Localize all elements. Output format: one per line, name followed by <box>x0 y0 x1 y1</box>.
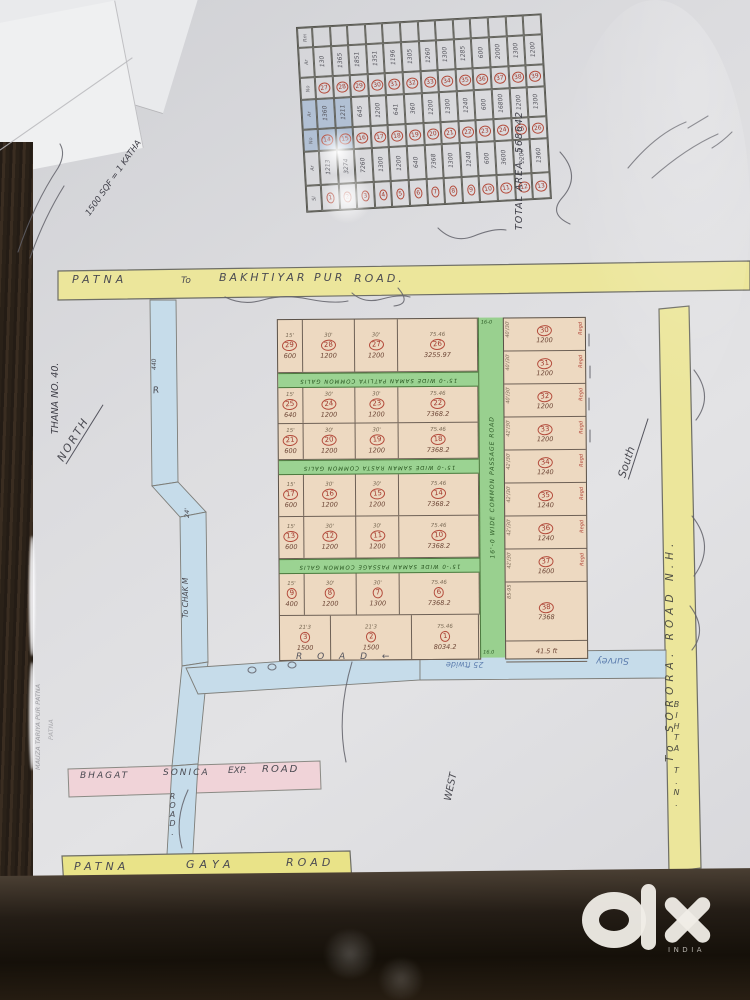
table-cell-value: No <box>308 137 314 144</box>
table-cell-value: 1 <box>326 191 335 203</box>
plot-dimension: 75.46 <box>430 427 446 433</box>
plot-area: 1200 <box>321 447 338 455</box>
plot-area: 600 <box>284 447 296 455</box>
table-cell <box>488 16 507 37</box>
table-cell <box>347 24 366 45</box>
left-road-label-mid: To CHAK M <box>181 522 190 618</box>
plot-area: 1200 <box>537 435 554 443</box>
table-cell-value: 28 <box>335 80 348 93</box>
table-cell-value: 7368 <box>430 154 438 170</box>
plot-dimension: 15' <box>286 392 295 398</box>
plot-area: 1200 <box>368 446 385 454</box>
table-cell: 19 <box>406 123 425 146</box>
plot-dimension: 21'3 <box>299 624 311 630</box>
table-cell: 1300 <box>442 143 461 178</box>
table-cell-value: 3600 <box>500 150 508 166</box>
registration-mark: Regd <box>579 454 585 467</box>
plot-number: 26 <box>429 338 445 350</box>
table-cell-value: 33 <box>423 75 436 88</box>
table-cell-value: 1240 <box>462 98 470 114</box>
table-cell: 1300 <box>436 39 455 70</box>
table-cell: 34 <box>438 69 457 92</box>
table-cell: 23 <box>476 119 495 142</box>
table-cell-value: 22 <box>461 125 474 138</box>
table-cell: 5 <box>391 180 410 207</box>
plot-number: 9 <box>286 588 297 600</box>
table-cell <box>470 17 489 38</box>
table-cell: 37 <box>490 66 509 89</box>
plot-row: 15'940030'8120030'7130075.4667368.2 <box>280 573 480 616</box>
plot-number: 1 <box>439 630 450 642</box>
plot-area: 400 <box>285 600 297 608</box>
registration-mark: Regd <box>579 421 585 434</box>
table-cell <box>365 23 384 44</box>
table-cell-value: 7 <box>431 186 440 198</box>
registration-mark: Regd <box>578 355 584 368</box>
table-cell: 1285 <box>454 38 473 69</box>
plot-dimension: 30' <box>373 523 382 529</box>
plot-dimension: 15' <box>287 524 296 530</box>
plot-number: 37 <box>538 555 554 567</box>
plot-number: 29 <box>282 339 298 351</box>
table-cell <box>523 14 542 35</box>
table-cell: 26 <box>528 116 547 139</box>
plot-area: 7368 <box>538 613 555 621</box>
table-cell-value: 9 <box>466 184 475 196</box>
plot-cell: 30'121200 <box>304 517 357 558</box>
table-cell-value: 640 <box>413 157 421 169</box>
table-cell-value: 1200 <box>374 103 382 119</box>
total-area-note: TOTAL AREA. 568642 <box>514 52 525 230</box>
plot-cell: 85-95387368 <box>506 582 587 642</box>
table-cell-value: 21 <box>443 126 456 139</box>
left-road-label-bottom: ROAD. <box>168 792 177 862</box>
plot-row: 15'2960030'28120030'27120075.46263255.97 <box>278 319 478 373</box>
plot-area: 1500 <box>363 643 380 651</box>
left-road-width-top: 440 <box>151 330 158 370</box>
plot-cell: 15'13600 <box>279 517 304 558</box>
table-cell-value: 34 <box>441 74 454 87</box>
plot-cell: 30'231200 <box>356 387 399 422</box>
plot-number: 13 <box>283 530 299 542</box>
table-cell-value: 1213 <box>325 160 333 176</box>
plot-number: 21 <box>283 434 299 446</box>
plot-cell: 30'281200 <box>303 320 356 372</box>
plot-cell: 30'161200 <box>304 475 357 516</box>
plot-number: 34 <box>537 456 553 468</box>
table-cell-value: 1200 <box>395 156 403 172</box>
plot-area: 600 <box>285 543 297 551</box>
olx-o-glyph <box>582 892 646 948</box>
plot-area: 1600 <box>538 567 555 575</box>
table-cell-value: 645 <box>357 106 365 118</box>
plot-dimension: 21'3 <box>365 624 377 630</box>
plot-cell: 30'271200 <box>355 319 398 371</box>
plot-block-right: 40'/30'301200Regd40'/30'311200Regd40'/30… <box>503 317 588 660</box>
table-cell: 8 <box>444 177 463 204</box>
table-cell-value: 1300 <box>377 157 385 173</box>
pink-road-word-4: ROAD <box>262 764 299 775</box>
table-cell: 27 <box>315 76 334 99</box>
plot-cell: 30'191200 <box>356 423 399 458</box>
olx-logo: olx INDIA <box>575 880 735 970</box>
table-cell-value: 3 <box>361 189 370 201</box>
plot-dimension: 75.46 <box>437 623 453 629</box>
table-cell: 360 <box>404 93 423 124</box>
table-cell: 7 <box>426 178 445 205</box>
pink-road-word-2: SONICA <box>163 768 210 778</box>
plot-number: 18 <box>430 433 446 445</box>
table-cell <box>505 15 524 36</box>
plot-number: 22 <box>430 397 446 409</box>
table-cell-value: 4 <box>378 188 387 200</box>
table-cell-value: 29 <box>353 79 366 92</box>
table-cell: 11 <box>496 174 515 201</box>
plot-area: 1240 <box>537 468 554 476</box>
plot-area: 41.5 ft <box>536 647 557 655</box>
table-cell: 21 <box>441 121 460 144</box>
table-cell-value: 7260 <box>360 158 368 174</box>
table-cell-value: 1240 <box>465 152 473 168</box>
table-cell-value: 1360 <box>322 106 330 122</box>
table-cell: 6 <box>409 179 428 206</box>
table-cell: 1305 <box>401 41 420 72</box>
table-cell: 1200 <box>369 95 388 126</box>
table-cell: 3 <box>356 182 375 209</box>
main-road-survey: Survey <box>596 655 629 666</box>
plot-number: 6 <box>433 586 444 598</box>
plot-area: 1200 <box>368 410 385 418</box>
plot-dimension: 30' <box>326 581 335 587</box>
plot-cell: 75.4667368.2 <box>399 573 479 615</box>
table-cell: 2 <box>338 183 357 210</box>
table-cell: 1260 <box>418 40 437 71</box>
road-label-patna-bottom: PATNA <box>74 860 129 873</box>
table-cell-value: 13 <box>535 179 548 192</box>
plot-number: 15 <box>369 488 385 500</box>
plot-cell: 15'17600 <box>279 475 304 516</box>
plot-cell: 42'/30'371600Regd <box>505 549 586 583</box>
plot-area: 8034.2 <box>434 642 457 650</box>
plot-area: 3255.97 <box>424 350 451 358</box>
green-lane-strip: 15'-0 WIDE SAMAN RASTA COMMON GALIS <box>279 459 479 475</box>
olx-l-glyph <box>641 884 656 950</box>
plot-cell: 75.46107368.2 <box>399 516 479 558</box>
plot-dimension: 15' <box>287 482 296 488</box>
table-cell-value: 14 <box>321 133 334 146</box>
registration-mark: Regd <box>578 322 584 335</box>
plot-cell: 42'/30'341240Regd <box>505 450 586 484</box>
plot-dimension: 42'/30' <box>506 551 512 568</box>
plot-dimension: 30' <box>325 392 334 398</box>
table-cell: 1200 <box>421 92 440 123</box>
plot-dimension: 15' <box>286 428 295 434</box>
plot-dimension: 15' <box>287 581 296 587</box>
table-cell <box>382 22 401 43</box>
table-cell-value: 1196 <box>389 50 397 66</box>
plot-area: 1500 <box>297 643 314 651</box>
registration-mark: Regd <box>579 553 585 566</box>
plot-number: 16 <box>322 488 338 500</box>
table-cell: 14 <box>318 128 337 151</box>
table-cell: Ar <box>298 47 315 78</box>
table-cell: 640 <box>407 145 426 180</box>
plot-dimension: 75.46 <box>431 523 447 529</box>
table-cell: No <box>303 129 319 152</box>
plot-number: 17 <box>283 488 299 500</box>
plot-area: 1200 <box>322 600 339 608</box>
green-road-label: 16'-0 WIDE COMMON PASSAGE ROAD <box>487 338 496 638</box>
table-cell: 13 <box>532 172 551 199</box>
plot-area: 600 <box>284 351 296 359</box>
table-cell: 39 <box>526 64 545 87</box>
table-cell-value: No <box>305 85 311 92</box>
table-cell <box>400 21 419 42</box>
plot-dimension: 30' <box>372 427 381 433</box>
plot-area: 1200 <box>322 543 339 551</box>
table-cell-value: 16800 <box>497 94 505 113</box>
plot-dimension: 30' <box>324 332 333 338</box>
table-cell: 1365 <box>331 45 350 76</box>
table-cell: 16 <box>353 126 372 149</box>
table-cell: 1240 <box>459 142 478 177</box>
table-cell-value: 16 <box>356 131 369 144</box>
plot-area: 1240 <box>538 534 555 542</box>
table-cell: Rm <box>297 27 313 48</box>
plot-area: 7368.2 <box>426 410 449 418</box>
table-cell: Sl <box>306 185 322 212</box>
plot-area: 1200 <box>368 351 385 359</box>
plot-area: 1200 <box>537 402 554 410</box>
table-cell-value: 8 <box>449 185 458 197</box>
plot-area: 1200 <box>321 411 338 419</box>
plot-dimension: 42'/30' <box>506 419 512 436</box>
table-cell-value: Ar <box>309 165 315 171</box>
table-cell-value: 6 <box>413 186 422 198</box>
plot-number: 7 <box>372 587 383 599</box>
plot-number: 19 <box>369 434 385 446</box>
plot-dimension: 75.46 <box>430 481 446 487</box>
plot-number: 2 <box>365 630 376 642</box>
plot-cell: 42'/30'331200Regd <box>505 417 586 451</box>
plot-number: 35 <box>538 489 554 501</box>
table-cell-value: 17 <box>373 130 386 143</box>
plot-cell: 15'21600 <box>279 424 304 459</box>
table-cell: No <box>300 77 316 100</box>
road-label-bakhtiyarpur: BAKHTIYAR PUR <box>219 271 345 284</box>
table-cell: 1851 <box>348 44 367 75</box>
table-cell-value: 1300 <box>442 47 450 63</box>
road-label-road-bottom: ROAD <box>286 856 334 869</box>
table-cell-value: Rm <box>302 33 308 42</box>
plot-dimension: 30' <box>372 332 381 338</box>
table-cell <box>312 26 331 47</box>
table-cell-value: 30 <box>370 78 383 91</box>
table-cell-value: 600 <box>483 153 491 165</box>
table-cell: 1300 <box>527 86 546 117</box>
plot-row: 15'2160030'20120030'19120075.46187368.2 <box>279 423 479 460</box>
table-cell-value: 19 <box>408 128 421 141</box>
table-cell-value: 1260 <box>424 48 432 64</box>
plot-area: 640 <box>284 411 296 419</box>
table-cell-value: 20 <box>426 127 439 140</box>
plot-number: 36 <box>538 522 554 534</box>
margin-note-1: MAUZA TARIYA PUR PATNA <box>34 460 42 770</box>
road-label-patna-top: PATNA <box>72 273 127 286</box>
table-cell: 7368 <box>424 144 443 179</box>
plot-cell: 30'151200 <box>356 474 399 515</box>
table-cell: 2000 <box>489 36 508 67</box>
plot-summary-table: RmAr130136518511351119613051260130012856… <box>297 14 551 211</box>
table-cell: 130 <box>313 46 332 77</box>
plot-number: 32 <box>537 390 553 402</box>
table-cell: 645 <box>351 96 370 127</box>
plot-area: 1200 <box>369 542 386 550</box>
plot-cell: 75.4618034.2 <box>412 615 479 659</box>
plot-cell: 15'25640 <box>278 388 303 423</box>
table-cell: 1351 <box>366 43 385 74</box>
table-cell: 600 <box>474 89 493 120</box>
table-cell-value: 18 <box>391 129 404 142</box>
plot-dimension: 15' <box>286 332 295 338</box>
table-cell: 30 <box>367 73 386 96</box>
table-cell-value: 10 <box>482 182 495 195</box>
table-cell-value: 1200 <box>427 100 435 116</box>
table-cell: 35 <box>455 68 474 91</box>
plot-area: 1240 <box>537 501 554 509</box>
plot-dimension: 30' <box>325 482 334 488</box>
plot-area: 7368.2 <box>427 446 450 454</box>
table-cell: 36 <box>473 67 492 90</box>
plot-number: 24 <box>321 398 337 410</box>
table-cell-value: 5 <box>396 187 405 199</box>
registration-mark: Regd <box>579 520 585 533</box>
plot-number: 3 <box>299 631 310 643</box>
table-cell: 1300 <box>439 91 458 122</box>
road-label-right: To SORORA. ROAD N.H. <box>664 310 676 762</box>
plot-cell: 75.46147368.2 <box>399 474 479 516</box>
plot-dimension: 30' <box>325 428 334 434</box>
main-road-width-note: 25 ftwide <box>446 660 483 669</box>
plot-number: 14 <box>430 487 446 499</box>
plot-dimension: 42'/30' <box>506 452 512 469</box>
plot-number: 8 <box>324 587 335 599</box>
plot-dimension: 42'/30' <box>506 518 512 535</box>
table-cell: 28 <box>332 75 351 98</box>
plot-number: 23 <box>368 398 384 410</box>
table-cell-value: 3274 <box>342 159 350 175</box>
registration-mark: Regd <box>579 487 585 500</box>
table-cell-value: 600 <box>477 47 485 59</box>
table-cell: 1300 <box>372 147 391 182</box>
table-cell <box>435 19 454 40</box>
pink-road-word-3: EXP. <box>228 766 247 776</box>
plot-number: 27 <box>368 338 384 350</box>
plot-dimension: 40'/30' <box>505 353 511 370</box>
plot-cell: 40'/30'311200Regd <box>504 351 585 385</box>
plot-dimension: 30' <box>325 524 334 530</box>
plot-number: 20 <box>321 434 337 446</box>
plot-row: 15'2564030'24120030'23120075.46227368.2 <box>278 387 478 424</box>
table-cell-value: 1351 <box>371 51 379 67</box>
green-lane-strip: 15'-0 WIDE SAMAN PATLIYA COMMON GALIS <box>278 372 478 388</box>
registration-mark: Regd <box>578 388 584 401</box>
plot-block-left: 15'2960030'28120030'27120075.46263255.97… <box>277 318 481 661</box>
plot-number: 12 <box>322 530 338 542</box>
table-cell: 15 <box>335 127 354 150</box>
table-cell-value: 27 <box>318 81 331 94</box>
plot-area: 600 <box>285 501 297 509</box>
table-cell-value: 11 <box>499 181 512 194</box>
table-cell-value: 641 <box>392 104 400 116</box>
plot-number: 31 <box>537 357 553 369</box>
plot-cell: 41.5 ft <box>506 641 587 663</box>
olx-region-text: INDIA <box>668 946 705 954</box>
table-cell-value: 1851 <box>354 52 362 68</box>
table-cell: 600 <box>471 37 490 68</box>
table-cell: 1360 <box>530 138 549 173</box>
table-cell-value: 1211 <box>339 105 347 121</box>
main-road-label: R O A D ← <box>296 652 395 662</box>
plot-cell: 40'/30'301200Regd <box>504 318 585 352</box>
plot-cell: 75.46227368.2 <box>398 387 478 423</box>
table-cell: 20 <box>423 122 442 145</box>
table-cell: 18 <box>388 124 407 147</box>
road-label-road-top: ROAD. <box>354 272 405 285</box>
plot-cell: 30'241200 <box>303 388 356 423</box>
plot-number: 10 <box>431 529 447 541</box>
plot-dimension: 40'/30' <box>505 320 511 337</box>
plot-dimension: 30' <box>373 481 382 487</box>
table-cell-value: 36 <box>476 72 489 85</box>
table-cell: 3274 <box>336 149 355 184</box>
left-road-width-24: 24' <box>183 496 191 518</box>
road-label-bihta: BIHTA T.N. <box>672 700 681 865</box>
table-cell-value: 1285 <box>459 46 467 62</box>
margin-note-2: PATNA <box>47 480 55 740</box>
plot-area: 7368.2 <box>427 542 450 550</box>
road-green-vertical: 16'-0 WIDE COMMON PASSAGE ROAD 16-0 16.0 <box>478 317 506 657</box>
green-road-top-mark: 16-0 <box>481 320 492 326</box>
plot-cell: 30'71300 <box>357 573 400 614</box>
thana-note: THANA NO. 40. <box>50 298 61 434</box>
table-cell-value: 1365 <box>336 53 344 69</box>
plot-cell: 42'/30'351240Regd <box>505 483 586 517</box>
table-cell: 4 <box>373 181 392 208</box>
table-cell-value: 23 <box>479 124 492 137</box>
table-cell: 1196 <box>383 42 402 73</box>
table-cell-value: 15 <box>338 132 351 145</box>
plot-dimension: 30' <box>373 580 382 586</box>
plot-area: 1200 <box>320 351 337 359</box>
table-cell: 1 <box>321 184 340 211</box>
table-cell-value: Sl <box>311 196 317 201</box>
table-cell: 24 <box>493 118 512 141</box>
plot-number: 28 <box>321 339 337 351</box>
table-cell: 1213 <box>319 150 338 185</box>
table-cell-value: 1300 <box>448 153 456 169</box>
plot-row: 15'1760030'16120030'15120075.46147368.2 <box>279 474 479 517</box>
table-cell: 16800 <box>492 88 511 119</box>
green-lane-label: 15'-0 WIDE SAMAN RASTA COMMON GALIS <box>303 463 455 470</box>
table-cell: Ar <box>301 99 318 130</box>
green-road-bottom-mark: 16.0 <box>483 650 494 656</box>
table-cell: 10 <box>479 175 498 202</box>
table-cell-value: 2 <box>343 190 352 202</box>
table-cell: 3600 <box>495 140 514 175</box>
table-cell-value: 35 <box>458 73 471 86</box>
plot-dimension: 75.46 <box>429 331 445 337</box>
